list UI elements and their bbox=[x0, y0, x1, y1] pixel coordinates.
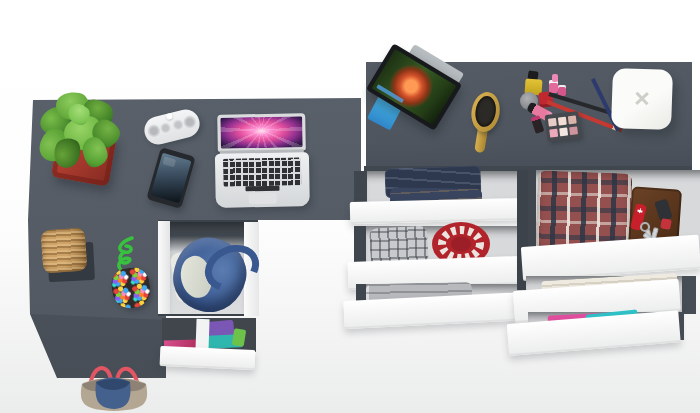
wicker-texture bbox=[41, 228, 88, 274]
laptop bbox=[212, 111, 312, 209]
laptop-keyboard bbox=[223, 157, 301, 186]
eyeshadow-pan bbox=[548, 118, 557, 127]
potted-plant bbox=[38, 92, 128, 188]
white-square-device bbox=[611, 68, 673, 130]
eyeshadow-pan bbox=[549, 129, 558, 138]
desk-drawer-rail-left bbox=[158, 221, 170, 314]
laptop-trackpad bbox=[249, 193, 277, 204]
speaker-hinge bbox=[166, 113, 173, 120]
eyeshadow-pan bbox=[569, 126, 578, 135]
hairbrush-bristles bbox=[473, 95, 498, 129]
laptop-body bbox=[215, 152, 310, 208]
hairbrush-head bbox=[469, 90, 503, 134]
eyeshadow-pan bbox=[558, 117, 567, 126]
laptop-display bbox=[220, 116, 303, 148]
speaker-driver bbox=[182, 114, 198, 130]
speaker-driver bbox=[159, 121, 172, 134]
wicker-basket bbox=[41, 228, 88, 274]
eyeshadow-palette bbox=[544, 111, 581, 142]
desk-drawer-front bbox=[160, 346, 256, 370]
nail-polish-pink-tiny bbox=[552, 74, 558, 82]
laptop-screen-lid bbox=[217, 113, 306, 152]
eyeshadow-pan bbox=[568, 115, 577, 124]
beaded-pouch bbox=[104, 236, 154, 308]
handbag bbox=[74, 352, 154, 413]
eyeshadow-pan bbox=[559, 128, 568, 137]
scene bbox=[0, 0, 700, 413]
laptop-spacebar bbox=[245, 186, 279, 192]
